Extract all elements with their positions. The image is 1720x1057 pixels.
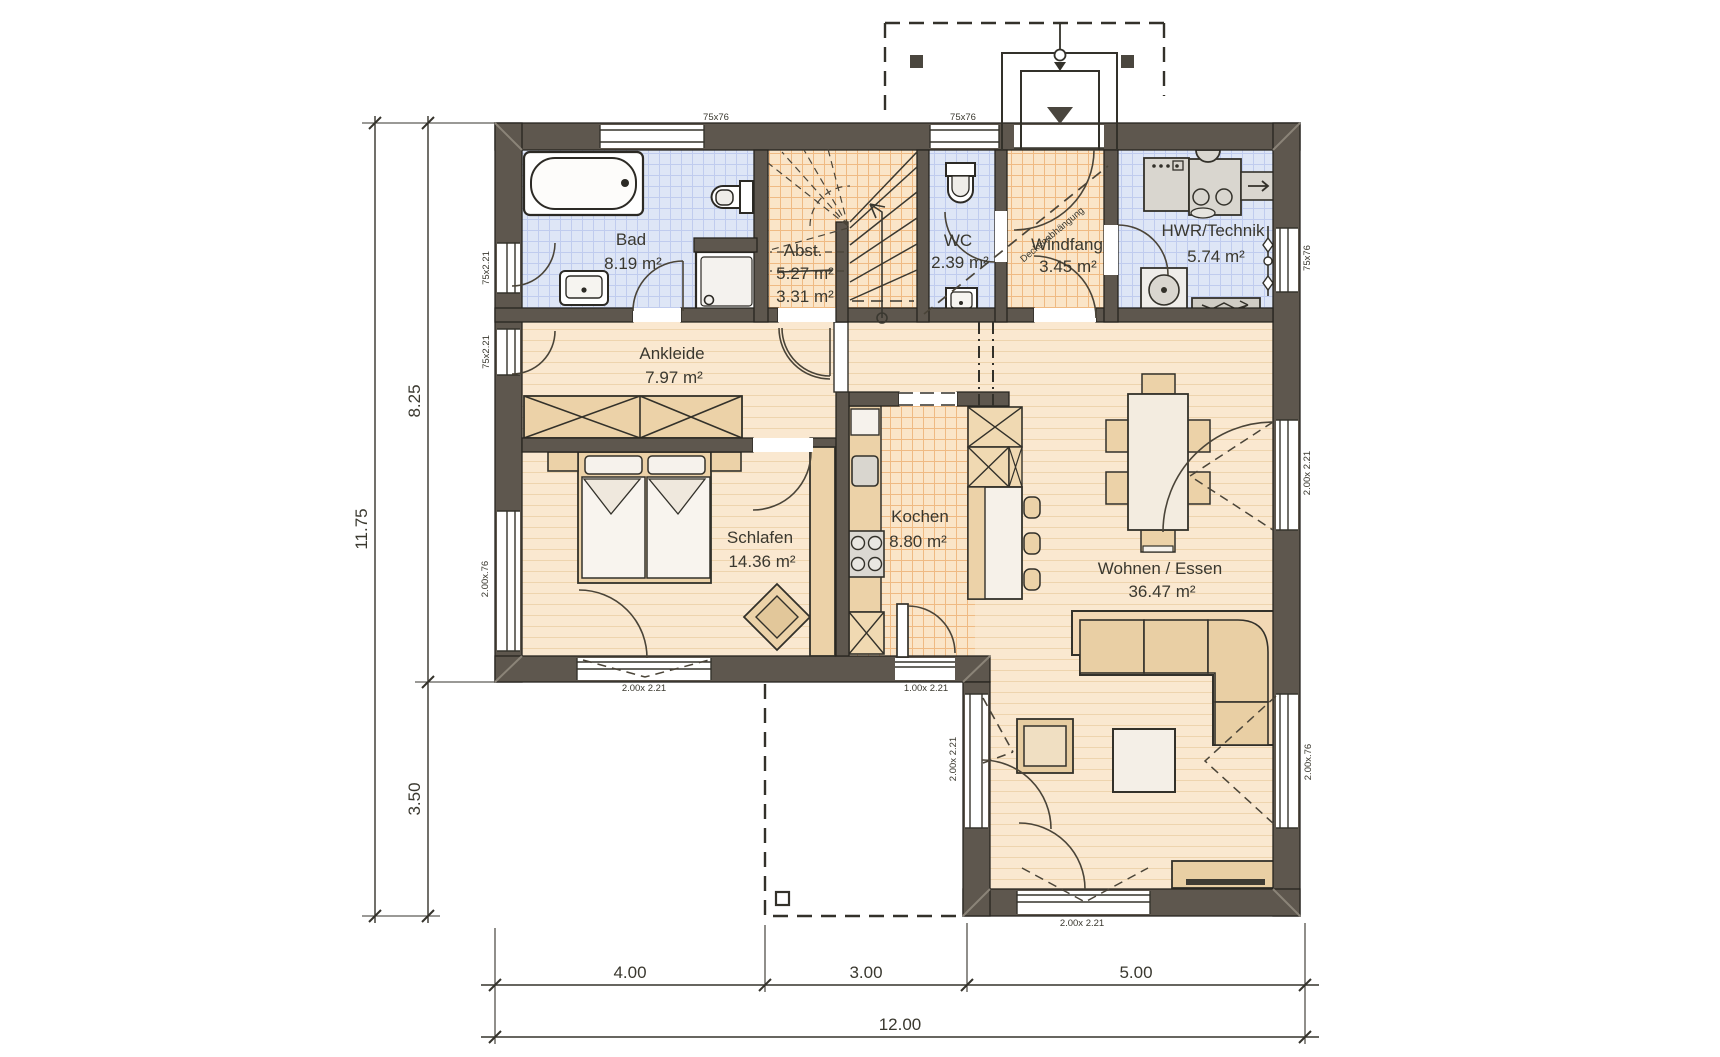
svg-text:75x2.21: 75x2.21 [481, 335, 492, 369]
svg-text:3.31 m²: 3.31 m² [776, 287, 834, 306]
svg-text:3.50: 3.50 [405, 782, 424, 815]
svg-text:2.00x.76: 2.00x.76 [480, 561, 491, 597]
svg-text:14.36 m²: 14.36 m² [728, 552, 795, 571]
svg-text:3.45 m²: 3.45 m² [1039, 257, 1097, 276]
svg-text:5.00: 5.00 [1119, 963, 1152, 982]
svg-text:HWR/Technik: HWR/Technik [1162, 221, 1265, 240]
svg-text:2.00x 2.21: 2.00x 2.21 [1060, 918, 1104, 929]
svg-text:36.47 m²: 36.47 m² [1128, 582, 1195, 601]
svg-text:3.00: 3.00 [849, 963, 882, 982]
svg-text:5.27 m²: 5.27 m² [776, 264, 834, 283]
svg-text:Wohnen / Essen: Wohnen / Essen [1098, 559, 1222, 578]
svg-text:5.74 m²: 5.74 m² [1187, 247, 1245, 266]
svg-text:11.75: 11.75 [352, 508, 371, 549]
svg-text:8.19 m²: 8.19 m² [604, 254, 662, 273]
svg-text:Bad: Bad [616, 230, 646, 249]
svg-text:Ankleide: Ankleide [639, 344, 704, 363]
svg-text:75x76: 75x76 [703, 112, 729, 123]
svg-text:75x2.21: 75x2.21 [481, 251, 492, 285]
svg-text:4.00: 4.00 [613, 963, 646, 982]
svg-text:2.39 m²: 2.39 m² [931, 253, 989, 272]
svg-text:75x76: 75x76 [950, 112, 976, 123]
svg-text:75x76: 75x76 [1302, 245, 1313, 271]
svg-text:2.00x 2.21: 2.00x 2.21 [948, 737, 959, 781]
svg-text:1.00x 2.21: 1.00x 2.21 [904, 683, 948, 694]
svg-text:Schlafen: Schlafen [727, 528, 793, 547]
svg-text:WC: WC [944, 231, 972, 250]
svg-text:8.80 m²: 8.80 m² [889, 532, 947, 551]
svg-text:2.00x.76: 2.00x.76 [1303, 744, 1314, 780]
svg-text:12.00: 12.00 [879, 1015, 922, 1034]
svg-text:2.00x 2.21: 2.00x 2.21 [1302, 451, 1313, 495]
svg-text:8.25: 8.25 [405, 384, 424, 417]
svg-text:2.00x 2.21: 2.00x 2.21 [622, 683, 666, 694]
svg-text:7.97 m²: 7.97 m² [645, 368, 703, 387]
svg-text:Kochen: Kochen [891, 507, 949, 526]
svg-text:Abst.: Abst. [784, 241, 823, 260]
